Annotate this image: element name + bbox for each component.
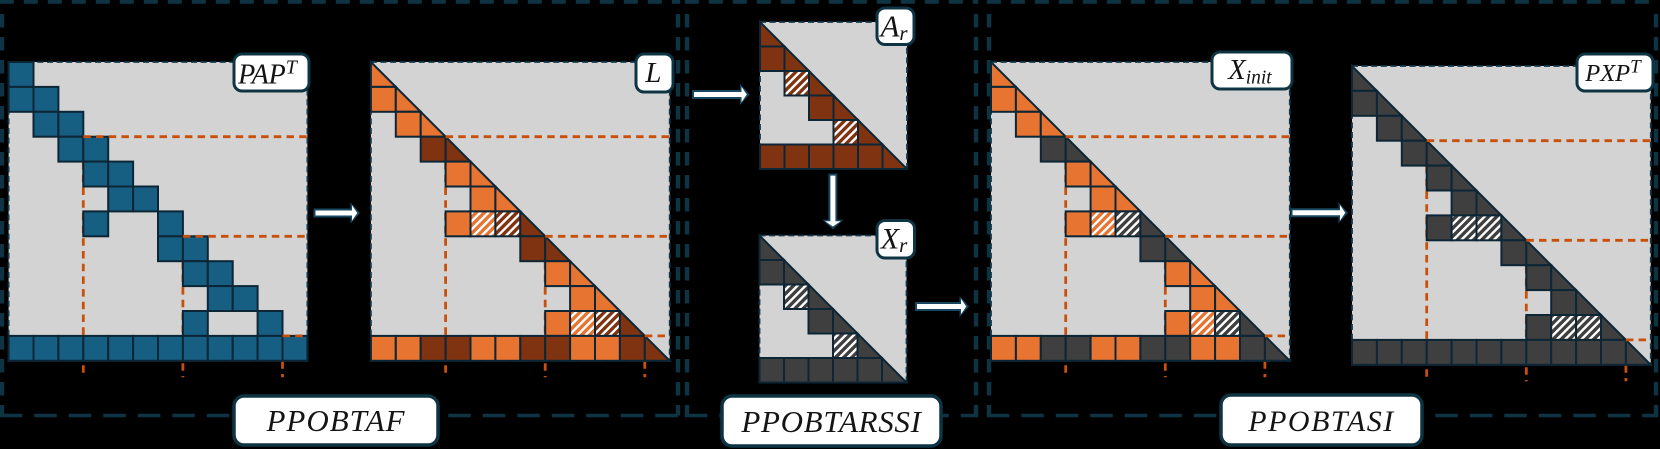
svg-text:PPOBTARSSI: PPOBTARSSI (740, 404, 922, 439)
svg-text:L: L (644, 57, 661, 89)
svg-text:PPOBTASI: PPOBTASI (1247, 405, 1395, 438)
svg-text:PPOBTAF: PPOBTAF (265, 403, 405, 438)
